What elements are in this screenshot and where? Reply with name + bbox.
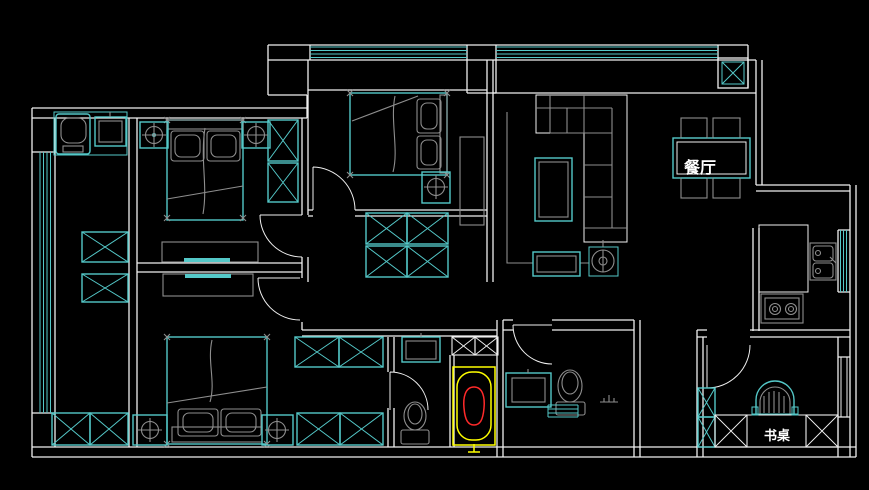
sofa	[536, 95, 627, 242]
study-chair	[752, 381, 798, 415]
washing-machine	[56, 114, 90, 154]
bath2-toilet	[556, 370, 585, 415]
faucet-symbol	[600, 395, 618, 402]
study-side-cabinets	[698, 388, 715, 447]
nightstand	[242, 122, 270, 148]
nightstand	[133, 415, 167, 445]
bed-second	[164, 334, 270, 447]
dining-room-label: 餐厅	[683, 158, 716, 177]
tv-cabinet	[533, 252, 580, 276]
desk-label: 书桌	[764, 428, 791, 444]
master-wardrobe	[268, 120, 298, 202]
laundry-sink	[95, 112, 126, 146]
column-pillar	[718, 58, 748, 88]
floor-plan: 餐厅	[0, 0, 869, 490]
dressing-closet-cabinets	[295, 337, 383, 445]
door-swings	[258, 167, 750, 410]
bath2-sink	[506, 369, 551, 407]
fan-symbol	[589, 240, 618, 276]
bed-third	[347, 90, 450, 178]
rug-outline	[507, 112, 589, 263]
dresser-tv-master	[162, 242, 258, 262]
window-glazing	[40, 47, 847, 417]
exterior-walls	[32, 45, 856, 457]
gas-stove	[761, 294, 803, 323]
study-window	[841, 357, 847, 417]
kitchen-sink	[810, 243, 836, 280]
hallway-wardrobe-block	[366, 213, 448, 277]
nightstand	[140, 122, 168, 148]
hall-storage-cabinets	[52, 232, 128, 445]
bath-overhead-cabinets	[452, 337, 498, 355]
bed-master	[164, 117, 246, 221]
bath1-toilet	[401, 402, 429, 444]
kitchen-counter	[759, 225, 808, 292]
bathtub	[453, 367, 495, 452]
bath1-sink	[402, 333, 440, 362]
dresser-tv-second	[163, 274, 253, 296]
bedroom-desk	[460, 137, 484, 225]
coffee-table	[535, 158, 572, 221]
